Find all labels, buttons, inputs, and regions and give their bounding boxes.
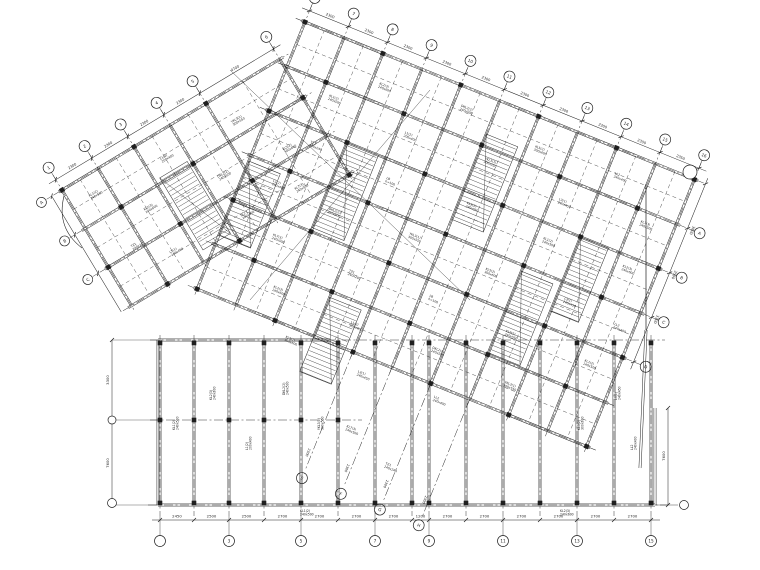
- column-mark: [192, 341, 197, 346]
- bubble-leader: [269, 42, 273, 49]
- grid-bubble-label: 9: [428, 539, 431, 544]
- stair-tread-line: [496, 337, 526, 349]
- stair-tread-line: [343, 154, 373, 166]
- stair-tread-line: [514, 291, 544, 303]
- bubble-leader: [51, 172, 55, 179]
- column-mark: [118, 204, 124, 210]
- column-mark: [575, 501, 580, 506]
- grid-bubble: [108, 499, 117, 508]
- stair-tread-line: [330, 187, 360, 199]
- column-mark: [164, 281, 170, 287]
- dim-tick: [89, 155, 94, 160]
- dim-label: 2500: [207, 514, 217, 519]
- dim-label: 2300: [175, 97, 186, 106]
- stair-tread-line: [315, 225, 345, 237]
- stair-tread-line: [223, 227, 253, 239]
- stair-tread-line: [473, 171, 503, 183]
- stair-tread-line: [509, 304, 539, 316]
- column-mark: [410, 501, 415, 506]
- beam-annotation: 240x450: [562, 300, 576, 309]
- dim-label: 2300: [481, 75, 492, 82]
- beam-line: [196, 22, 304, 289]
- stair-tread-line: [328, 192, 358, 204]
- beam-line: [508, 147, 616, 414]
- bubble-leader: [634, 362, 641, 365]
- dim-label: 2300: [139, 119, 150, 128]
- column-mark: [464, 501, 469, 506]
- column-mark: [131, 144, 137, 150]
- dim-label: 2700: [389, 514, 399, 519]
- bubble-leader: [87, 151, 91, 158]
- stair-tread-line: [237, 193, 267, 205]
- bubble-leader: [465, 66, 468, 74]
- column-mark: [373, 341, 378, 346]
- stair-tread-line: [321, 321, 351, 333]
- bubble-leader: [426, 50, 429, 58]
- stair-slope-line: [300, 297, 361, 384]
- beam-line: [586, 179, 694, 446]
- dim-label: 1200: [416, 514, 426, 519]
- stair-tread-line: [516, 287, 546, 299]
- dim-label: 2350: [676, 154, 687, 161]
- beam-annotation: 300x600: [533, 148, 547, 157]
- column-mark: [373, 501, 378, 506]
- stair-tread-line: [518, 283, 548, 295]
- beam-line: [352, 85, 460, 352]
- stair-tread-line: [564, 282, 590, 292]
- dim-label: 2700: [443, 514, 453, 519]
- stair-tread-line: [311, 346, 341, 358]
- stair-tread-line: [577, 248, 603, 258]
- main-grid-system: 6789101112131415162300230023002300230023…: [135, 0, 735, 570]
- grid-bubble-label: 5: [300, 539, 303, 544]
- dim-label: 2450: [172, 514, 182, 519]
- dim-tick: [667, 270, 672, 275]
- column-mark: [538, 341, 543, 346]
- beam-annotation: 240x600: [272, 288, 286, 297]
- bubble-leader: [621, 129, 624, 137]
- stair-tread-line: [575, 253, 601, 263]
- column-mark: [612, 341, 617, 346]
- axis-centerline: [53, 54, 288, 195]
- stair-tread-line: [520, 279, 550, 291]
- dim-label: 2300: [67, 162, 78, 171]
- beam-annotation: 240x240: [384, 465, 398, 474]
- column-mark: [262, 341, 267, 346]
- stair-tread-line: [552, 311, 578, 321]
- stair-tread-line: [474, 166, 504, 178]
- bubble-leader: [699, 160, 702, 168]
- beam-annotation: 200x400: [349, 323, 363, 332]
- dim-label: 2300: [442, 60, 453, 67]
- beam-annotation: 240x500: [583, 362, 597, 371]
- dim-label: 2300: [637, 138, 648, 145]
- dim-tick: [657, 150, 662, 155]
- beam-annotation: 240x500: [176, 416, 180, 430]
- stair-tread-line: [471, 175, 501, 187]
- stair-tread-line: [579, 244, 605, 254]
- stair-tread-line: [454, 216, 484, 228]
- beam-annotation: 200x400: [271, 182, 285, 191]
- secondary-beam-line: [97, 117, 315, 248]
- grid-bubble-label: 15: [648, 539, 654, 544]
- dim-label: 2300: [598, 123, 609, 130]
- beam-annotation: 300x550: [321, 416, 325, 430]
- dimension-line: [49, 45, 280, 184]
- stair-tread-line: [580, 240, 606, 250]
- grid-bubble-label: 3: [228, 539, 231, 544]
- secondary-beam-line: [224, 222, 613, 379]
- dim-tick: [49, 193, 54, 198]
- drawing-sheet: 12345623002300230023004700KL1(2)240x500K…: [0, 0, 760, 570]
- dim-tick: [502, 87, 507, 92]
- grid-bubble: [108, 416, 116, 424]
- axis-centerline: [89, 153, 171, 289]
- bubble-leader: [309, 3, 312, 11]
- column-mark: [158, 341, 163, 346]
- beam-annotation: 240x500: [345, 427, 359, 436]
- axis-centerline: [423, 399, 470, 516]
- stair-tread-line: [319, 325, 349, 337]
- stair-slope-line: [452, 134, 518, 232]
- column-mark: [649, 501, 654, 506]
- stair-tread-line: [340, 162, 370, 174]
- beam-annotation: 300x600: [484, 270, 498, 279]
- grid-bubble-label: 13: [574, 539, 580, 544]
- column-mark: [299, 341, 304, 346]
- dimension-line: [631, 178, 708, 369]
- grid-bubble: [683, 165, 697, 179]
- dim-label: 2300: [520, 91, 531, 98]
- dim-label: 2300: [364, 28, 375, 35]
- column-mark: [59, 187, 65, 193]
- stair-tread-line: [238, 189, 268, 201]
- stair-tread-line: [494, 341, 524, 353]
- stair-tread-line: [469, 179, 499, 191]
- beam-annotation: 240x400: [634, 436, 638, 450]
- dim-label: 2700: [480, 514, 490, 519]
- column-mark: [158, 501, 163, 506]
- grid-bubble: [680, 501, 689, 510]
- stair-tread-line: [484, 141, 514, 153]
- dim-label: 2300: [343, 464, 350, 473]
- beam-annotation: 240x450: [557, 200, 571, 209]
- dim-label: 2700: [628, 514, 638, 519]
- beam-annotation: 240x400: [432, 398, 446, 407]
- dim-tick: [161, 112, 166, 117]
- stair-tread-line: [230, 210, 260, 222]
- beam-annotation: 240x500: [541, 239, 555, 248]
- bubble-leader: [159, 108, 163, 115]
- dim-label: 2300: [559, 107, 570, 114]
- dim-label: 7600: [105, 458, 110, 468]
- beam-annotation: 240x400: [612, 325, 626, 334]
- stair-tread-line: [338, 166, 368, 178]
- dim-label: 2700: [352, 514, 362, 519]
- dim-tick: [125, 134, 130, 139]
- stair-slope-line: [312, 142, 378, 240]
- column-mark: [427, 341, 432, 346]
- beam-annotation: 240x450: [618, 386, 622, 400]
- dim-label: 2300: [403, 44, 414, 51]
- beam-annotation: h=100: [428, 297, 439, 305]
- beam-line: [430, 116, 538, 383]
- grid-bubble: [155, 536, 166, 547]
- dim-tick: [95, 271, 100, 276]
- dim-label: 3300: [105, 375, 110, 385]
- column-mark: [299, 501, 304, 506]
- dim-tick: [703, 181, 708, 186]
- stair-tread-line: [220, 235, 250, 247]
- beam-line: [354, 85, 462, 352]
- beam-annotation: 240x600: [213, 386, 217, 400]
- column-mark: [227, 418, 232, 423]
- stair-tread-line: [567, 273, 593, 283]
- beam-annotation: 240x600: [560, 512, 574, 516]
- axis-centerline: [195, 5, 312, 294]
- beam-annotation: 200x400: [249, 436, 253, 450]
- lower-wing: 2450250025002700270027002700120027002700…: [105, 335, 689, 547]
- beam-annotation: 240x500: [327, 97, 341, 106]
- column-mark: [203, 100, 209, 106]
- beam-annotation: 240x450: [356, 373, 370, 382]
- stair-tread-line: [504, 316, 534, 328]
- dim-label: 7600: [661, 451, 666, 461]
- stair-tread-line: [570, 265, 596, 275]
- secondary-beam-line: [372, 93, 480, 360]
- stair-tread-line: [303, 367, 333, 379]
- grid-bubble-label: 11: [500, 539, 506, 544]
- column-mark: [249, 177, 255, 183]
- stair-tread-line: [483, 146, 513, 158]
- column-mark: [464, 341, 469, 346]
- column-mark: [227, 341, 232, 346]
- stair-tread-line: [493, 345, 523, 357]
- stair-tread-line: [511, 299, 541, 311]
- bubble-leader: [195, 86, 199, 93]
- grid-bubble: [308, 0, 322, 5]
- dim-label: 4700: [230, 64, 241, 73]
- dim-tick: [307, 8, 312, 13]
- beam-annotation: 240x600: [621, 267, 635, 276]
- stair-tread-line: [304, 363, 334, 375]
- dim-tick: [424, 55, 429, 60]
- axis-centerline: [161, 110, 243, 246]
- stair-tread-line: [467, 183, 497, 195]
- stair-tread-line: [323, 317, 353, 329]
- dim-tick: [696, 166, 701, 171]
- beam-annotation: 300x600: [581, 416, 585, 430]
- beam-annotation: 240x500: [271, 236, 285, 245]
- column-mark: [649, 341, 654, 346]
- beam-annotation: 240x500: [300, 512, 314, 516]
- stair-tread-line: [328, 305, 358, 317]
- beam-annotation: 240x550: [504, 332, 518, 341]
- axis-centerline: [390, 84, 507, 373]
- bubble-leader: [582, 113, 585, 121]
- framing-plan-canvas: 12345623002300230023004700KL1(2)240x500K…: [0, 0, 760, 570]
- beam-annotation: 240x600: [377, 85, 391, 94]
- beam-annotation: 240x400: [613, 174, 627, 183]
- beam-annotation: 240x240: [347, 272, 361, 281]
- stair-slope-line: [551, 237, 609, 322]
- column-mark: [192, 418, 197, 423]
- construction-line: [230, 70, 470, 300]
- stair-tread-line: [318, 217, 348, 229]
- dim-label: 2300: [103, 140, 114, 149]
- beam-annotation: 240x500: [286, 381, 290, 395]
- column-mark: [262, 501, 267, 506]
- column-mark: [410, 341, 415, 346]
- column-mark: [336, 341, 341, 346]
- stair-tread-line: [569, 269, 595, 279]
- dim-tick: [271, 46, 276, 51]
- grid-bubble-label: 7: [374, 539, 377, 544]
- stair-tread-line: [553, 307, 579, 317]
- stair-tread-line: [301, 371, 331, 383]
- axis-centerline: [306, 352, 353, 469]
- axis-centerline: [351, 68, 468, 357]
- stair-tread-line: [308, 355, 338, 367]
- bubble-leader: [387, 34, 390, 42]
- column-mark: [299, 418, 304, 423]
- column-mark: [105, 264, 111, 270]
- column-mark: [227, 501, 232, 506]
- bubble-leader: [504, 82, 507, 90]
- column-mark: [190, 161, 196, 167]
- axis-centerline: [384, 383, 431, 500]
- column-mark: [612, 501, 617, 506]
- column-mark: [336, 418, 341, 423]
- axis-centerline: [545, 147, 662, 436]
- beam-annotation: 300x600: [284, 338, 298, 347]
- dim-label: 2300: [382, 479, 389, 488]
- axis-centerline: [234, 21, 351, 310]
- column-mark: [575, 341, 580, 346]
- column-mark: [158, 418, 163, 423]
- dim-label: 2700: [278, 514, 288, 519]
- bubble-leader: [543, 97, 546, 105]
- beam-annotation: 240x550: [465, 204, 479, 213]
- dim-label: 2300: [305, 448, 312, 457]
- column-mark: [538, 501, 543, 506]
- dim-label: 2300: [325, 12, 336, 19]
- beam-line: [198, 22, 306, 289]
- axis-centerline: [584, 163, 701, 452]
- stair-tread-line: [513, 295, 543, 307]
- stair-tread-line: [332, 183, 362, 195]
- dim-label: 2500: [242, 514, 252, 519]
- column-mark: [262, 418, 267, 423]
- dim-label: 2700: [517, 514, 527, 519]
- dim-label: 2700: [591, 514, 601, 519]
- stair-tread-line: [326, 309, 356, 321]
- column-mark: [192, 501, 197, 506]
- column-mark: [336, 501, 341, 506]
- column-mark: [177, 221, 183, 227]
- column-mark: [501, 341, 506, 346]
- column-mark: [501, 501, 506, 506]
- stair-tread-line: [242, 181, 272, 193]
- bubble-leader: [660, 145, 663, 153]
- beam-annotation: 200x400: [403, 134, 417, 143]
- column-mark: [427, 501, 432, 506]
- stair-tread-line: [309, 351, 339, 363]
- bubble-leader: [123, 129, 127, 136]
- upper-grid-system: 12345623002300230023004700KL1(2)240x500K…: [21, 27, 361, 326]
- dim-label: 2700: [315, 514, 325, 519]
- stair-tread-line: [572, 261, 598, 271]
- stair-tread-line: [574, 257, 600, 267]
- bubble-leader: [348, 19, 351, 27]
